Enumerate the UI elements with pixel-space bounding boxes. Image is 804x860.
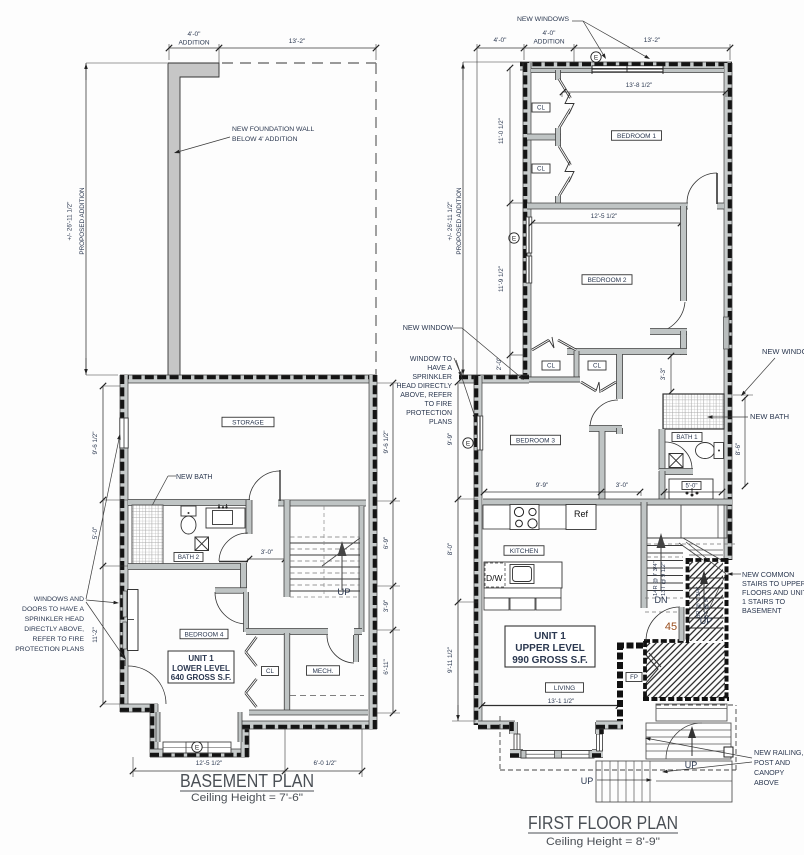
svg-text:BASEMENT: BASEMENT [742, 606, 782, 615]
svg-text:8R @ 7 3/4": 8R @ 7 3/4" [696, 587, 702, 618]
svg-text:LOWER LEVEL: LOWER LEVEL [172, 664, 230, 673]
svg-text:640 GROSS S.F.: 640 GROSS S.F. [171, 673, 231, 682]
svg-text:3'-9": 3'-9" [383, 600, 390, 613]
svg-text:DOORS TO HAVE A: DOORS TO HAVE A [22, 606, 84, 613]
svg-text:8'-0": 8'-0" [447, 543, 454, 556]
svg-text:ADDITION: ADDITION [533, 39, 564, 46]
svg-text:PLANS: PLANS [429, 419, 452, 426]
svg-text:WINDOWS AND: WINDOWS AND [34, 596, 84, 603]
svg-text:Ref: Ref [574, 509, 589, 519]
svg-text:WINDOW TO: WINDOW TO [410, 356, 453, 363]
svg-text:ADDITION: ADDITION [178, 40, 209, 47]
svg-text:45: 45 [665, 621, 677, 633]
svg-text:HEAD DIRECTLY: HEAD DIRECTLY [397, 383, 453, 390]
svg-text:STAIRS TO UPPER: STAIRS TO UPPER [742, 579, 804, 588]
svg-text:BASEMENT PLAN: BASEMENT PLAN [180, 771, 314, 791]
svg-text:PROPOSED ADDITION: PROPOSED ADDITION [456, 187, 463, 255]
svg-text:1 STAIRS TO: 1 STAIRS TO [742, 597, 786, 606]
svg-text:NEW WINDOW: NEW WINDOW [403, 323, 454, 332]
svg-text:3'-0": 3'-0" [261, 549, 274, 556]
svg-text:NEW WINDOW: NEW WINDOW [762, 347, 804, 356]
svg-text:HAVE A: HAVE A [427, 365, 452, 372]
svg-text:NEW BATH: NEW BATH [750, 412, 789, 421]
svg-text:DIRECTLY ABOVE,: DIRECTLY ABOVE, [24, 626, 84, 633]
svg-text:9'-6 1/2": 9'-6 1/2" [92, 431, 99, 454]
svg-text:TO FIRE: TO FIRE [425, 401, 453, 408]
svg-text:BATH 1: BATH 1 [676, 434, 698, 441]
svg-text:6'-0 1/2": 6'-0 1/2" [313, 760, 336, 767]
svg-text:FIRST FLOOR PLAN: FIRST FLOOR PLAN [528, 813, 678, 833]
svg-text:12'-5 1/2": 12'-5 1/2" [591, 213, 618, 220]
svg-text:CL: CL [537, 105, 545, 112]
svg-text:PROTECTION PLANS: PROTECTION PLANS [15, 646, 84, 653]
svg-text:CL: CL [266, 668, 274, 675]
svg-text:PROPOSED ADDITION: PROPOSED ADDITION [79, 187, 86, 255]
svg-text:BEDROOM 1: BEDROOM 1 [617, 133, 656, 140]
svg-text:FP: FP [630, 675, 638, 681]
svg-text:D/W: D/W [486, 573, 503, 583]
svg-text:E: E [466, 441, 471, 448]
svg-text:12'-5 1/2": 12'-5 1/2" [196, 760, 223, 767]
svg-text:ABOVE: ABOVE [754, 778, 779, 787]
svg-text:CL: CL [547, 363, 555, 370]
svg-text:BEDROOM 2: BEDROOM 2 [587, 277, 626, 284]
svg-text:13'-8 1/2": 13'-8 1/2" [626, 82, 653, 89]
svg-text:6'-11": 6'-11" [383, 659, 390, 675]
svg-text:Ceiling Height = 8'-9": Ceiling Height = 8'-9" [546, 836, 660, 848]
svg-text:ABOVE, REFER: ABOVE, REFER [400, 392, 452, 399]
svg-text:BEDROOM 3: BEDROOM 3 [516, 437, 555, 444]
svg-text:UNIT 1: UNIT 1 [534, 631, 566, 642]
svg-text:Ceiling Height = 7'-6": Ceiling Height = 7'-6" [191, 792, 303, 804]
svg-text:14R @ 7 3/4": 14R @ 7 3/4" [653, 561, 659, 596]
svg-text:CANOPY: CANOPY [754, 768, 785, 777]
svg-text:E: E [594, 55, 599, 62]
svg-text:4'-0": 4'-0" [494, 37, 508, 44]
svg-text:E: E [195, 745, 200, 752]
svg-text:LIVING: LIVING [554, 685, 575, 692]
svg-text:4'-0": 4'-0" [543, 30, 557, 37]
svg-text:E: E [512, 236, 517, 243]
svg-text:CL: CL [537, 166, 545, 173]
svg-text:UPPER LEVEL: UPPER LEVEL [515, 643, 584, 654]
svg-text:UP: UP [581, 776, 594, 786]
svg-text:11'-2": 11'-2" [92, 627, 99, 643]
svg-text:FLOORS AND UNIT: FLOORS AND UNIT [742, 588, 804, 597]
svg-text:NEW RAILING,: NEW RAILING, [754, 748, 804, 757]
svg-text:DN: DN [655, 595, 668, 605]
svg-text:+/- 26'-11 1/2": +/- 26'-11 1/2" [447, 202, 454, 241]
svg-text:+/- 26'-11 1/2": +/- 26'-11 1/2" [67, 202, 74, 241]
svg-text:13'-1 1/2": 13'-1 1/2" [548, 698, 575, 705]
svg-text:BELOW 4' ADDITION: BELOW 4' ADDITION [232, 136, 298, 143]
svg-text:NEW COMMON: NEW COMMON [742, 570, 794, 579]
svg-text:STORAGE: STORAGE [232, 419, 264, 426]
svg-text:SPRINKLER: SPRINKLER [412, 374, 452, 381]
svg-text:NEW FOUNDATION WALL: NEW FOUNDATION WALL [232, 126, 315, 133]
svg-text:13'-2": 13'-2" [644, 37, 661, 44]
svg-text:5T @ 9": 5T @ 9" [704, 597, 710, 618]
svg-text:11'-0 1/2": 11'-0 1/2" [498, 118, 505, 144]
svg-text:REFER TO FIRE: REFER TO FIRE [33, 636, 85, 643]
svg-text:POST AND: POST AND [754, 758, 790, 767]
svg-text:UP: UP [337, 587, 350, 598]
svg-text:13'-2": 13'-2" [289, 38, 306, 45]
svg-text:8'-6": 8'-6" [735, 443, 742, 456]
svg-text:MECH.: MECH. [313, 668, 334, 675]
svg-text:6'-9": 6'-9" [383, 537, 390, 550]
svg-text:9'-11 1/2": 9'-11 1/2" [447, 647, 454, 673]
svg-text:5'-0": 5'-0" [686, 484, 698, 490]
svg-text:NEW WINDOWS: NEW WINDOWS [517, 16, 570, 23]
svg-text:3'-0": 3'-0" [616, 482, 629, 489]
svg-text:KITCHEN: KITCHEN [510, 548, 539, 555]
svg-text:4'-0": 4'-0" [188, 31, 202, 38]
svg-text:9'-9": 9'-9" [447, 433, 454, 446]
svg-text:9'-6 1/2": 9'-6 1/2" [383, 430, 390, 453]
svg-text:NEW BATH: NEW BATH [176, 474, 212, 481]
svg-text:UNIT 1: UNIT 1 [188, 654, 214, 663]
svg-text:990 GROSS S.F.: 990 GROSS S.F. [512, 655, 588, 666]
svg-text:SPRINKLER HEAD: SPRINKLER HEAD [25, 616, 84, 623]
svg-text:9'-9": 9'-9" [536, 482, 549, 489]
svg-text:BATH 2: BATH 2 [178, 554, 200, 561]
svg-text:BEDROOM 4: BEDROOM 4 [184, 631, 223, 638]
svg-text:3'-3": 3'-3" [660, 368, 667, 381]
svg-text:11'-9 1/2": 11'-9 1/2" [498, 266, 505, 292]
svg-text:CL: CL [593, 363, 601, 370]
svg-text:13T @ 9 1/2": 13T @ 9 1/2" [661, 562, 667, 596]
svg-text:5'-0": 5'-0" [92, 527, 99, 540]
svg-text:PROTECTION: PROTECTION [406, 410, 452, 417]
